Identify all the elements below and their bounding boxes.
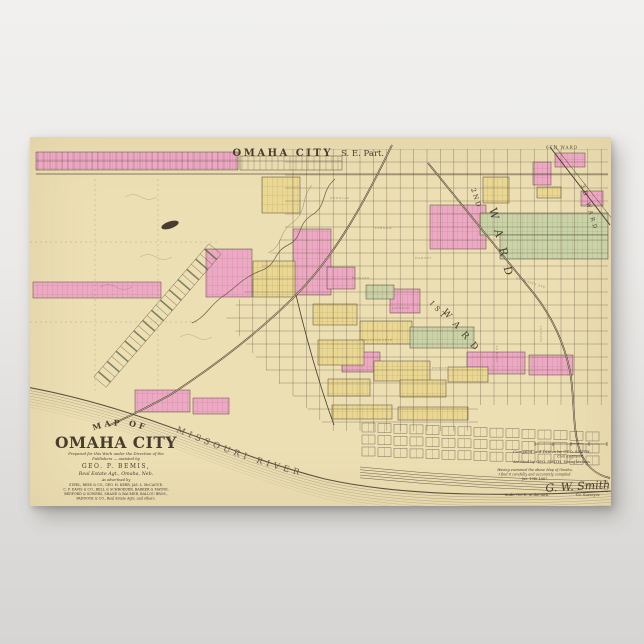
omaha-map: MISSOURI RIVER 6TH WARD2NDWARD3D WARD1ST… xyxy=(30,137,611,506)
svg-text:GEO. P. BEMIS,: GEO. P. BEMIS, xyxy=(82,463,150,470)
svg-text:BEDFORD & SOWERS, SHANE & BAUM: BEDFORD & SOWERS, SHANE & BAUMER, BALLOU… xyxy=(64,492,167,496)
map-poster: MISSOURI RIVER 6TH WARD2NDWARD3D WARD1ST… xyxy=(30,137,611,506)
svg-text:Co. Surveyor.: Co. Surveyor. xyxy=(576,493,600,497)
svg-text:As advertised by: As advertised by xyxy=(101,478,131,482)
svg-text:OMAHA CITY: OMAHA CITY xyxy=(233,148,333,159)
svg-text:FARNAM: FARNAM xyxy=(375,226,392,230)
map-blocks xyxy=(33,152,608,420)
svg-text:S. E. Part.: S. E. Part. xyxy=(341,149,384,159)
svg-text:DOUGLAS: DOUGLAS xyxy=(330,196,350,200)
svg-text:PIERCE: PIERCE xyxy=(432,366,447,370)
svg-text:PADDOCK & CO., Real Estate Agt: PADDOCK & CO., Real Estate Agts. and oth… xyxy=(76,497,155,501)
svg-text:Publishers — assisted by: Publishers — assisted by xyxy=(91,456,141,461)
svg-text:HOWARD: HOWARD xyxy=(352,276,370,280)
svg-text:MISSOURI RIVER: MISSOURI RIVER xyxy=(175,425,304,479)
svg-text:OMAHA CITY: OMAHA CITY xyxy=(55,433,177,452)
svg-text:ST. MARYS AVE: ST. MARYS AVE xyxy=(516,276,547,289)
svg-text:STEEL, REES & CO., GEO. H. KER: STEEL, REES & CO., GEO. H. KERR, JAS. L.… xyxy=(69,483,163,487)
svg-text:JACKSON: JACKSON xyxy=(391,306,411,310)
title-block: MAP OFOMAHA CITYPrepared for this Work u… xyxy=(55,417,177,500)
svg-text:Real Estate Agt., Omaha, Neb.: Real Estate Agt., Omaha, Neb. xyxy=(78,471,154,477)
map-title: OMAHA CITYS. E. Part. xyxy=(233,148,385,159)
svg-text:Jan. 15th 1887.: Jan. 15th 1887. xyxy=(521,477,548,481)
svg-text:I find it carefully and accura: I find it carefully and accurately compi… xyxy=(497,473,571,477)
product-background: MISSOURI RIVER 6TH WARD2NDWARD3D WARD1ST… xyxy=(0,0,644,644)
svg-text:6TH WARD: 6TH WARD xyxy=(546,145,578,150)
svg-text:Assisted by GEO. SMITH, Draugh: Assisted by GEO. SMITH, Draughtsman. xyxy=(512,459,591,464)
svg-text:C. F. DAVIS & CO., BELL & SCHR: C. F. DAVIS & CO., BELL & SCHROEDER, BAR… xyxy=(63,488,168,492)
svg-text:10TH ST: 10TH ST xyxy=(539,325,543,342)
svg-text:Civil Engineer.: Civil Engineer. xyxy=(557,455,583,459)
svg-text:Scale 700 ft. to the inch.: Scale 700 ft. to the inch. xyxy=(505,493,550,497)
svg-text:13TH ST: 13TH ST xyxy=(495,345,499,362)
svg-text:LEAVENWORTH: LEAVENWORTH xyxy=(362,338,393,342)
svg-text:Having examined the above Map: Having examined the above Map of Omaha, xyxy=(496,468,572,472)
svg-text:HARNEY: HARNEY xyxy=(415,256,432,260)
svg-text:Compiled and Drawn by GEO. SMI: Compiled and Drawn by GEO. SMITH, xyxy=(513,449,591,454)
